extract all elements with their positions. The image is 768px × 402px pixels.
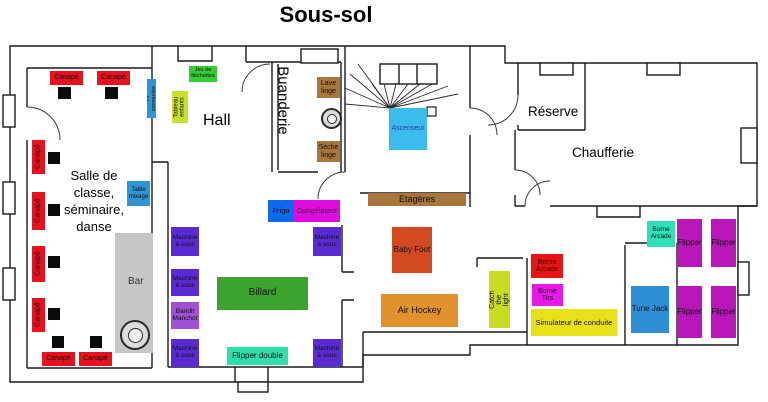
room-label-classroom: Salle de classe, séminaire, danse: [52, 168, 136, 236]
room-label-boiler: Chaufferie: [572, 145, 634, 160]
sofa: Canapé: [32, 140, 45, 174]
shooting-cabinet-label: Borne Tirs: [532, 288, 563, 302]
one-armed-bandit-label: Bandit Manchot: [171, 309, 199, 322]
side-table: [48, 256, 60, 268]
sofa: Canapé: [32, 298, 45, 332]
kids-board: Tableau enfants: [172, 91, 188, 123]
page-title: Sous-sol: [280, 2, 373, 28]
washer-drum-icon: [321, 108, 342, 129]
bar-sink-icon: [120, 320, 150, 350]
side-table: [48, 308, 60, 320]
dryer-label: Sèche linge: [317, 144, 340, 158]
slot-machine: Machine à sous: [171, 339, 199, 367]
pinball: Flipper: [711, 219, 736, 267]
tune-jack: Tune Jack: [631, 286, 669, 333]
pinball: Flipper: [677, 286, 702, 338]
freezer: Congélateur: [294, 200, 340, 222]
darts-game: Jeu de fléchettes: [189, 66, 217, 82]
slot-machine-label: Machine à sous: [171, 235, 199, 248]
dryer: Sèche linge: [317, 141, 340, 162]
slot-machine: Machine à sous: [313, 227, 341, 256]
pinball-label: Flipper: [711, 308, 735, 316]
sofa-label: Canapé: [35, 303, 42, 328]
sofa-label: Canapé: [83, 355, 108, 362]
foosball: Baby Foot: [392, 227, 432, 273]
bar-label: Bar: [128, 276, 144, 287]
catch-the-light-label: Catch the light: [489, 289, 510, 310]
side-table: [48, 152, 60, 164]
side-table: [105, 87, 118, 99]
side-table: [52, 336, 64, 348]
pinball-label: Flipper: [711, 239, 735, 247]
one-armed-bandit: Bandit Manchot: [171, 302, 199, 329]
arcade-cabinet-label: Borne Arcade: [647, 227, 675, 240]
double-pinball: Flipper double: [227, 347, 288, 365]
floorplan-basement: Sous-sol Bar CanapéCanapéCanapéCanapéCan…: [0, 0, 768, 402]
washing-machine-label: Lave linge: [317, 80, 340, 94]
tune-jack-label: Tune Jack: [632, 305, 669, 313]
air-hockey-label: Air Hockey: [398, 306, 442, 315]
driving-simulator-label: Simulateur de conduite: [536, 319, 613, 327]
sofa-label: Canapé: [46, 355, 71, 362]
pinball-label: Flipper: [677, 239, 701, 247]
kids-board-label: Tableau enfants: [174, 96, 186, 117]
sofa-label: Canapé: [101, 74, 126, 81]
elevator-shaft-corner: [427, 107, 436, 116]
slot-machine: Machine à sous: [171, 227, 199, 256]
room-label-hall: Hall: [203, 112, 231, 130]
shooting-cabinet: Borne Tirs: [532, 284, 563, 306]
shelves: Etagères: [368, 193, 466, 206]
room-label-reserve: Réserve: [528, 104, 578, 119]
double-pinball-label: Flipper double: [232, 352, 283, 360]
side-table: [58, 87, 71, 99]
sofa: Canapé: [97, 71, 130, 85]
billiard-table-label: Billard: [249, 288, 277, 298]
sofa: Canapé: [32, 192, 45, 230]
darts-game-label: Jeu de fléchettes: [189, 68, 217, 79]
pinball-label: Flipper: [677, 308, 701, 316]
elevator: Ascenseur: [389, 108, 427, 150]
sofa: Canapé: [32, 246, 45, 282]
fridge: Frigo: [268, 200, 294, 222]
slot-machine-label: Machine à sous: [171, 346, 199, 359]
washing-machine: Lave linge: [317, 77, 340, 98]
sofa-label: Canapé: [35, 199, 42, 224]
sofa: Canapé: [50, 71, 83, 85]
connected-tv: TV connectée: [147, 79, 156, 118]
slot-machine: Machine à sous: [313, 339, 341, 367]
room-label-laundry: Buanderie: [272, 58, 294, 142]
slot-machine-label: Machine à sous: [171, 276, 199, 289]
slot-machine: Machine à sous: [171, 269, 199, 296]
fridge-label: Frigo: [272, 207, 289, 215]
sofa-label: Canapé: [35, 145, 42, 170]
foosball-label: Baby Foot: [394, 246, 430, 254]
sofa: Canapé: [79, 352, 112, 366]
air-hockey: Air Hockey: [381, 294, 458, 327]
arcade-cabinet: Borne Arcade: [647, 221, 675, 247]
slot-machine-label: Machine à sous: [313, 235, 341, 248]
elevator-label: Ascenseur: [391, 125, 424, 132]
catch-the-light: Catch the light: [489, 271, 510, 328]
slot-machine-label: Machine à sous: [313, 346, 341, 359]
side-table: [90, 336, 102, 348]
sofa: Canapé: [42, 352, 75, 366]
pinball: Flipper: [677, 219, 702, 267]
shelves-label: Etagères: [399, 195, 435, 204]
freezer-label: Congélateur: [297, 207, 338, 215]
arcade-cabinet-label: Borne Arcade: [531, 259, 563, 273]
sofa-label: Canapé: [35, 252, 42, 277]
sofa-label: Canapé: [54, 74, 79, 81]
arcade-cabinet: Borne Arcade: [531, 254, 563, 278]
billiard-table: Billard: [217, 277, 308, 310]
pinball: Flipper: [711, 286, 736, 338]
driving-simulator: Simulateur de conduite: [531, 309, 617, 336]
connected-tv-label: TV connectée: [147, 86, 156, 111]
